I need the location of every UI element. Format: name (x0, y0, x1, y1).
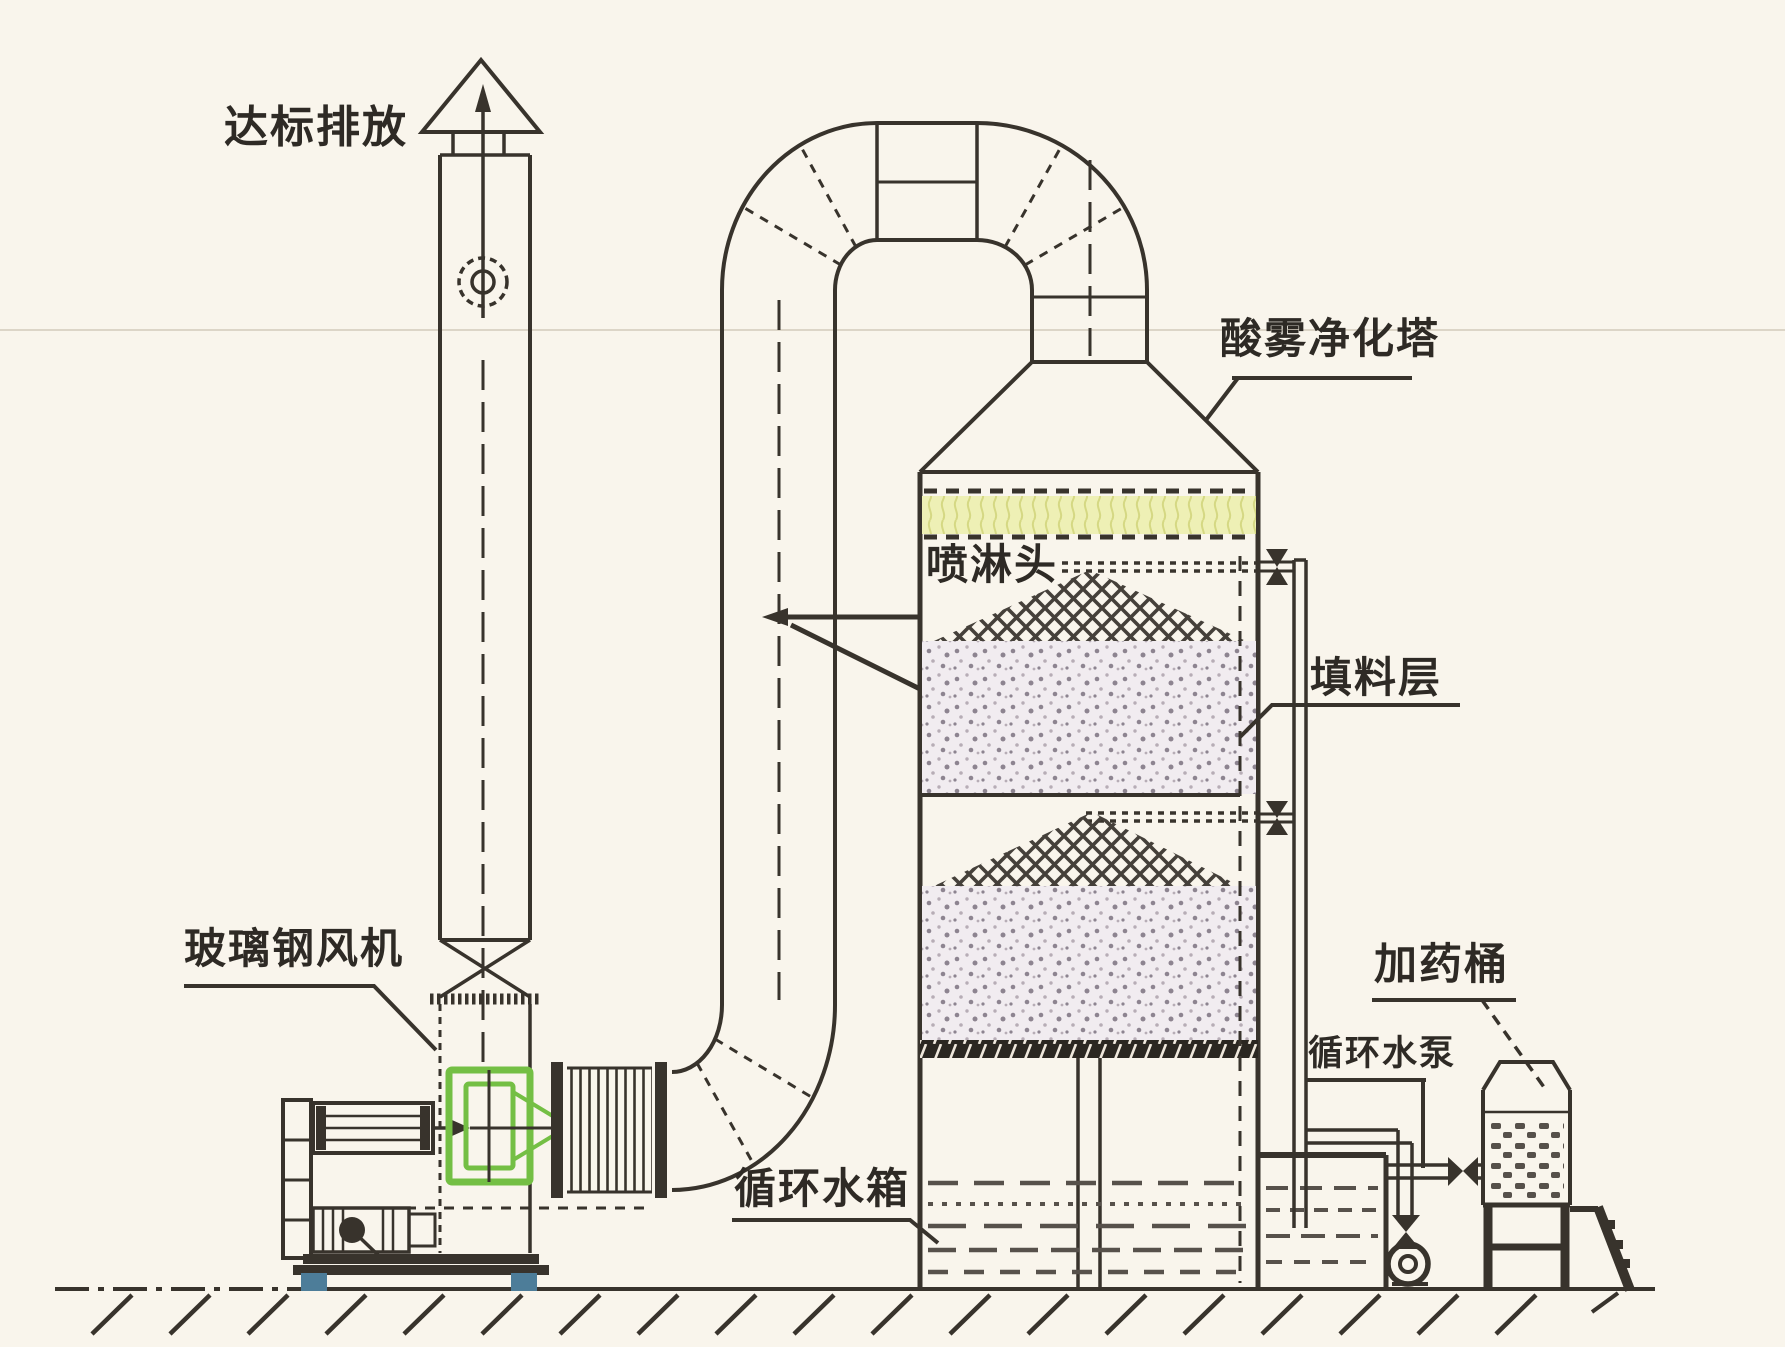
valve-icon (1266, 549, 1288, 567)
ground (55, 1289, 1655, 1334)
riser-pipe (1294, 560, 1306, 1228)
spray-header-1 (1062, 563, 1256, 571)
sump-water-level (1266, 1188, 1378, 1262)
fan-label-leader (184, 986, 436, 1050)
leader-lines (184, 378, 1546, 1243)
packing-bed-2 (922, 886, 1256, 1040)
scrubber-system-diagram (0, 0, 1785, 1347)
demister-band (922, 496, 1256, 534)
stack-brace (440, 940, 530, 997)
pump-fitting-icon (1392, 1215, 1420, 1232)
label-spray-head: 喷淋头 (926, 544, 1058, 586)
label-discharge: 达标排放 (224, 106, 408, 150)
fan-base-frame (303, 1254, 539, 1264)
label-packing-layer: 填料层 (1310, 657, 1442, 699)
tank-label-leader (732, 1220, 938, 1243)
flexible-connector (567, 1068, 652, 1192)
exhaust-stack (422, 60, 540, 1253)
flex-flange (655, 1062, 667, 1198)
inlet-pointer (788, 617, 920, 689)
packing-bed-1 (922, 641, 1256, 794)
spray-header-2 (1086, 813, 1256, 821)
vibration-foot (511, 1273, 537, 1291)
pump-icon (1388, 1244, 1428, 1284)
label-fan: 玻璃钢风机 (184, 928, 404, 970)
ground-hatching (92, 1295, 1536, 1334)
left-arrow-icon (762, 608, 788, 626)
up-flow-arrow-icon (475, 84, 491, 112)
diagram-canvas: 达标排放 玻璃钢风机 酸雾净化塔 喷淋头 填料层 循环水箱 循环水泵 加药桶 (0, 0, 1785, 1347)
pump-discharge-pipe (1306, 1130, 1412, 1215)
barrel-contents (1489, 1118, 1564, 1200)
packing-label-leader (1240, 705, 1460, 737)
internal-downpipe (1078, 1058, 1100, 1287)
tank-water-level (928, 1183, 1250, 1272)
label-tower: 酸雾净化塔 (1220, 318, 1440, 360)
spray-cone-2 (934, 812, 1240, 886)
vibration-foot (301, 1273, 327, 1291)
label-dosing-barrel: 加药桶 (1374, 944, 1509, 987)
flex-flange (551, 1062, 563, 1198)
tower-label-leader (1206, 378, 1412, 420)
valve-icon (1448, 1157, 1463, 1186)
scrubber-tower (920, 472, 1386, 1287)
label-water-tank: 循环水箱 (734, 1168, 910, 1210)
packing-support-grid (920, 1040, 1258, 1058)
label-water-pump: 循环水泵 (1308, 1036, 1456, 1071)
fan-assembly (283, 1062, 667, 1291)
dosing-barrel (1483, 1062, 1630, 1312)
